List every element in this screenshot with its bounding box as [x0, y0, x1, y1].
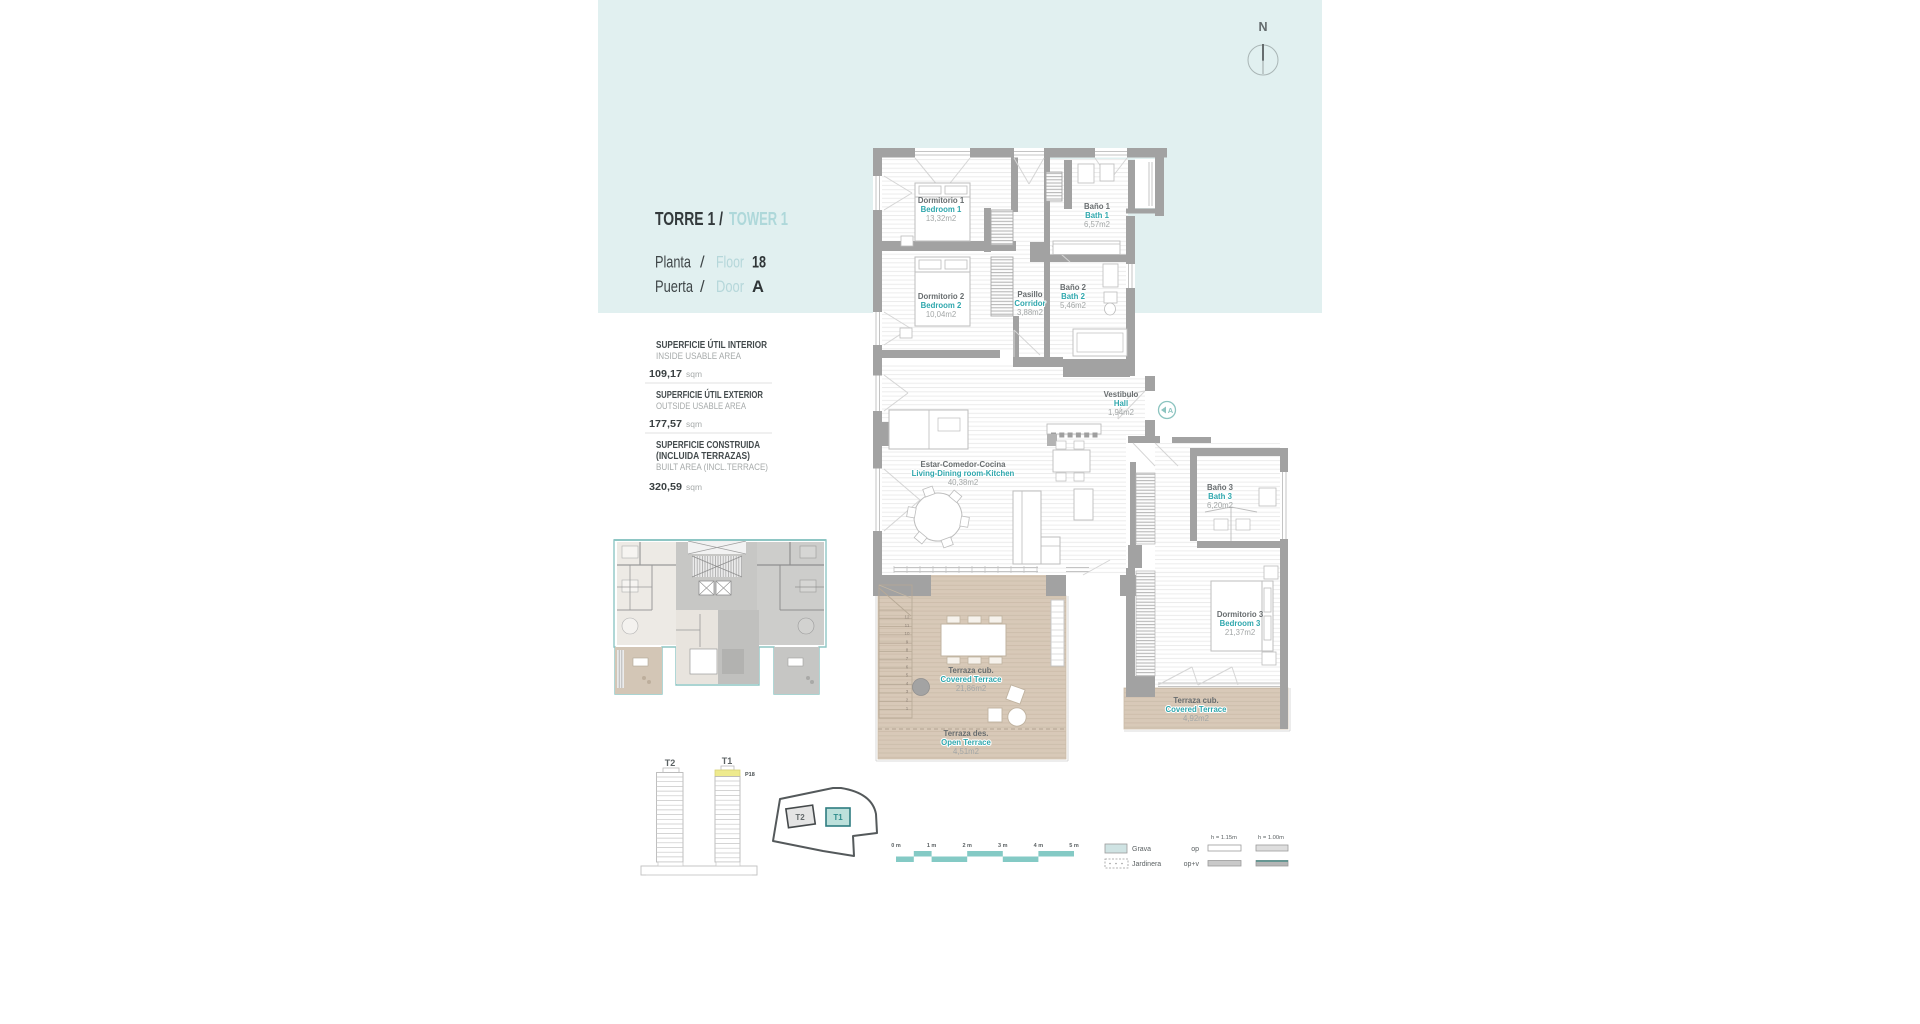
svg-text:1,94m2: 1,94m2: [1108, 408, 1134, 417]
svg-text:5 m: 5 m: [1069, 843, 1079, 849]
svg-text:0 m: 0 m: [891, 843, 901, 849]
svg-text:h = 1.00m: h = 1.00m: [1258, 835, 1284, 841]
svg-text:109,17: 109,17: [649, 369, 682, 380]
svg-text:3,88m2: 3,88m2: [1017, 308, 1043, 317]
svg-text:Covered Terrace: Covered Terrace: [1166, 705, 1228, 714]
svg-text:Floor: Floor: [716, 254, 744, 272]
svg-text:Terraza des.: Terraza des.: [944, 729, 989, 738]
svg-text:T2: T2: [665, 758, 676, 768]
svg-text:op: op: [1191, 846, 1199, 853]
svg-text:Pasillo: Pasillo: [1017, 290, 1042, 299]
svg-text:10,04m2: 10,04m2: [926, 310, 956, 319]
svg-text:OUTSIDE USABLE AREA: OUTSIDE USABLE AREA: [656, 401, 746, 411]
svg-text:Baño 2: Baño 2: [1060, 283, 1087, 292]
svg-text:Estar-Comedor-Cocina: Estar-Comedor-Cocina: [921, 460, 1007, 469]
svg-text:Terraza cub.: Terraza cub.: [948, 666, 993, 675]
svg-text:Door: Door: [716, 278, 744, 296]
svg-text:5,46m2: 5,46m2: [1060, 301, 1086, 310]
svg-text:Dormitorio 3: Dormitorio 3: [1217, 610, 1264, 619]
svg-text:A: A: [1168, 406, 1174, 415]
svg-text:SUPERFICIE ÚTIL EXTERIOR: SUPERFICIE ÚTIL EXTERIOR: [656, 389, 763, 401]
svg-text:21,86m2: 21,86m2: [956, 684, 986, 693]
svg-text:Bath 3: Bath 3: [1208, 492, 1232, 501]
svg-text:320,59: 320,59: [649, 482, 682, 493]
svg-text:T1: T1: [722, 756, 733, 766]
svg-text:2 m: 2 m: [962, 843, 972, 849]
svg-text:A: A: [752, 278, 764, 296]
svg-text:18: 18: [752, 254, 766, 272]
svg-text:Living-Dining room-Kitchen: Living-Dining room-Kitchen: [912, 469, 1015, 478]
svg-text:Bedroom 3: Bedroom 3: [1220, 619, 1261, 628]
svg-text:Vestibulo: Vestibulo: [1104, 390, 1139, 399]
svg-text:Dormitorio 2: Dormitorio 2: [918, 292, 965, 301]
svg-text:Bath 2: Bath 2: [1061, 292, 1085, 301]
svg-text:TORRE 1 /: TORRE 1 /: [655, 208, 723, 229]
svg-text:13,32m2: 13,32m2: [926, 214, 956, 223]
svg-text:sqm: sqm: [686, 482, 702, 492]
svg-text:Grava: Grava: [1132, 846, 1151, 853]
svg-text:TOWER 1: TOWER 1: [729, 208, 788, 229]
svg-text:INSIDE USABLE AREA: INSIDE USABLE AREA: [656, 351, 741, 361]
svg-text:6,57m2: 6,57m2: [1084, 220, 1110, 229]
svg-text:Planta: Planta: [655, 254, 692, 272]
svg-text:P18: P18: [745, 772, 755, 778]
svg-text:/: /: [700, 278, 705, 296]
svg-text:Corridor: Corridor: [1014, 299, 1045, 308]
svg-text:sqm: sqm: [686, 369, 702, 379]
svg-text:11: 11: [905, 623, 910, 628]
svg-text:Terraza cub.: Terraza cub.: [1173, 696, 1218, 705]
svg-text:6,20m2: 6,20m2: [1207, 501, 1233, 510]
svg-text:1 m: 1 m: [927, 843, 937, 849]
svg-text:Hall: Hall: [1114, 399, 1128, 408]
svg-text:3 m: 3 m: [998, 843, 1008, 849]
svg-text:Covered Terrace: Covered Terrace: [941, 675, 1003, 684]
svg-text:Bath 1: Bath 1: [1085, 211, 1109, 220]
svg-text:12: 12: [904, 615, 910, 620]
svg-text:4,51m2: 4,51m2: [953, 747, 979, 756]
svg-text:Baño 1: Baño 1: [1084, 202, 1111, 211]
svg-text:4 m: 4 m: [1034, 843, 1044, 849]
svg-text:10: 10: [904, 631, 910, 636]
svg-text:Open Terrace: Open Terrace: [941, 738, 991, 747]
svg-text:Bedroom 1: Bedroom 1: [921, 205, 962, 214]
svg-text:h = 1.15m: h = 1.15m: [1211, 835, 1237, 841]
svg-text:Bedroom 2: Bedroom 2: [921, 301, 962, 310]
svg-text:sqm: sqm: [686, 419, 702, 429]
svg-text:177,57: 177,57: [649, 419, 682, 430]
svg-text:N: N: [1258, 20, 1267, 34]
svg-text:op+v: op+v: [1184, 861, 1200, 868]
svg-text:Jardinera: Jardinera: [1132, 861, 1161, 868]
svg-text:4,92m2: 4,92m2: [1183, 714, 1209, 723]
svg-text:Puerta: Puerta: [655, 278, 694, 296]
svg-text:Baño 3: Baño 3: [1207, 483, 1234, 492]
svg-text:T2: T2: [795, 813, 805, 822]
svg-text:21,37m2: 21,37m2: [1225, 628, 1255, 637]
svg-text:BUILT AREA (INCL.TERRACE): BUILT AREA (INCL.TERRACE): [656, 462, 768, 472]
svg-text:SUPERFICIE ÚTIL INTERIOR: SUPERFICIE ÚTIL INTERIOR: [656, 339, 767, 351]
svg-text:(INCLUIDA TERRAZAS): (INCLUIDA TERRAZAS): [656, 451, 750, 462]
svg-text:/: /: [700, 254, 705, 272]
svg-text:SUPERFICIE CONSTRUIDA: SUPERFICIE CONSTRUIDA: [656, 440, 760, 451]
svg-text:40,38m2: 40,38m2: [948, 478, 978, 487]
svg-text:T1: T1: [833, 813, 843, 822]
svg-text:Dormitorio 1: Dormitorio 1: [918, 196, 965, 205]
